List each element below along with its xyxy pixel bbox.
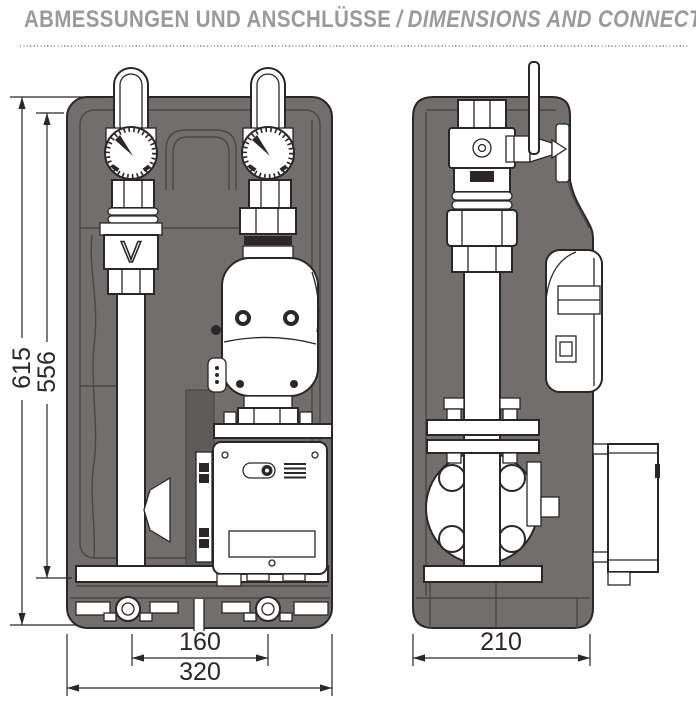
union-nut [108,269,154,294]
pump-knob [211,325,221,335]
base-slot [222,602,250,613]
dim-label-556: 556 [33,351,61,393]
datasheet-page: ABMESSUNGEN UND ANSCHLÜSSE/DIMENSIONS AN… [0,0,696,702]
dim-label-320: 320 [179,658,221,686]
union-ring [108,208,158,215]
valve-body-right [249,180,291,208]
flange-bolt-circle [499,526,525,552]
manifold-bar-side [424,566,542,582]
valve-emblem [473,139,491,157]
pipe-left-front [117,294,145,566]
flange-bolt [500,398,520,409]
dim-label-615: 615 [8,347,36,389]
actuator-foot [217,574,241,586]
side-view [413,62,660,628]
technical-drawing: V [0,0,696,702]
base-slot [294,602,328,615]
actuator-screw [222,452,228,458]
flange-plate [214,424,332,438]
union-nut [452,246,512,272]
valve-side-tab [527,462,541,526]
union-ring [452,201,512,209]
flange-bolt-circle [499,465,525,491]
flange-plate [427,440,539,453]
dim-label-210: 210 [480,628,522,656]
flange-bolt-circle [439,526,465,552]
dim-label-160: 160 [179,628,221,656]
mixing-valve-actuator-side [593,444,660,585]
flange-bolt [444,398,464,409]
mixing-valve-actuator-front [213,442,327,586]
check-valve-mark: V [121,236,141,269]
pipe-side [464,270,500,566]
front-view: V [67,68,332,631]
pump-body [222,258,318,396]
actuator-housing-side [608,444,658,572]
flange-plate [427,420,539,435]
union-ring [452,192,512,200]
flange-bolt-circle [439,465,465,491]
union-ring [108,216,158,223]
pump-outlet [244,396,292,408]
valve-stub [541,497,559,517]
dimension-depth: 210 [413,628,590,666]
circulation-pump-side [546,250,602,392]
union-nut [238,408,298,424]
check-valve: V [100,223,162,269]
actuator-knob [655,464,660,478]
base-notch [194,599,204,631]
temperature-gauge-left [105,127,157,179]
lever-rod [529,62,539,154]
valve-body-left [112,180,154,208]
base-slot [150,602,178,613]
pump-neck [243,246,293,258]
temperature-gauge-right [242,127,294,179]
actuator-screw [312,452,318,458]
actuator-screw [269,560,275,566]
coupling [447,210,517,246]
threaded-fitting [458,100,506,128]
actuator-label-plate [229,531,315,557]
actuator-foot [608,572,630,585]
union-nut [240,208,296,234]
lever-nut [506,136,530,162]
gasket-band [244,236,292,245]
